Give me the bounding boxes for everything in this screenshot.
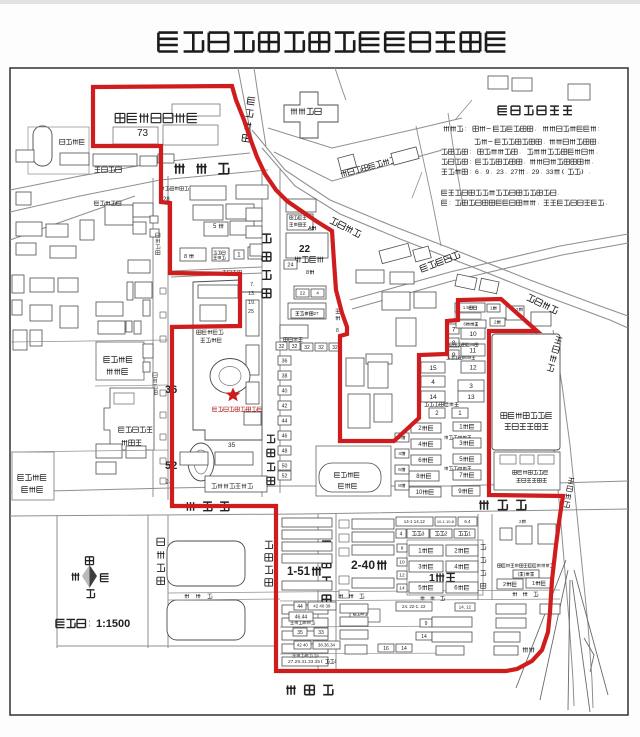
svg-text:48: 48 [282, 448, 288, 454]
svg-text:7.: 7. [250, 282, 255, 288]
svg-text:38.36.34: 38.36.34 [318, 643, 336, 648]
svg-text:6.4: 6.4 [464, 519, 471, 524]
svg-text:33: 33 [546, 169, 554, 176]
svg-text:40: 40 [282, 388, 288, 394]
svg-text:27.29.31.33.35: 27.29.31.33.35 [288, 659, 320, 665]
svg-text:35: 35 [297, 630, 303, 636]
svg-text:7: 7 [452, 326, 456, 333]
svg-text:2: 2 [519, 519, 522, 524]
svg-text:46: 46 [282, 433, 288, 439]
svg-text:29: 29 [532, 169, 540, 176]
svg-text:1:1500: 1:1500 [96, 618, 130, 630]
svg-text:73: 73 [137, 128, 149, 139]
svg-text:22: 22 [299, 244, 311, 255]
svg-text:35: 35 [228, 442, 236, 449]
svg-text:33: 33 [318, 630, 324, 636]
svg-text:1: 1 [468, 531, 471, 537]
svg-text:42: 42 [282, 403, 288, 409]
svg-text:1.5: 1.5 [463, 305, 469, 310]
svg-text:4: 4 [400, 531, 403, 537]
svg-text:4: 4 [431, 379, 435, 386]
svg-text:8: 8 [401, 546, 404, 552]
svg-text:32: 32 [279, 344, 285, 350]
svg-text:13: 13 [467, 394, 475, 401]
svg-text:19.: 19. [248, 300, 256, 306]
svg-text:8: 8 [398, 483, 401, 489]
svg-text:14: 14 [421, 634, 427, 640]
svg-text:10: 10 [399, 560, 405, 566]
svg-text:46.44: 46.44 [295, 614, 308, 620]
svg-text:42 40 38: 42 40 38 [313, 604, 331, 609]
svg-text:24. 22-1. 22: 24. 22-1. 22 [402, 604, 426, 609]
svg-text:6: 6 [475, 169, 479, 176]
svg-text:50: 50 [282, 463, 288, 469]
svg-text:13.: 13. [248, 291, 256, 297]
svg-text:14-1 14,12: 14-1 14,12 [404, 519, 426, 524]
svg-text:2: 2 [503, 582, 506, 588]
svg-text:11: 11 [469, 347, 476, 354]
svg-text:8: 8 [336, 328, 339, 334]
svg-text:10-1.10.8: 10-1.10.8 [437, 519, 455, 524]
svg-text:22: 22 [300, 291, 306, 297]
svg-text:27: 27 [314, 311, 320, 316]
svg-text:23: 23 [496, 169, 504, 176]
svg-text:12: 12 [399, 573, 405, 579]
svg-text:25: 25 [248, 309, 254, 315]
svg-text:A: A [308, 226, 312, 232]
svg-text:16: 16 [383, 646, 389, 652]
svg-text:44: 44 [297, 604, 303, 610]
svg-text:8: 8 [184, 254, 187, 260]
svg-text:36: 36 [282, 358, 288, 364]
svg-text:38: 38 [282, 373, 288, 379]
svg-text:8: 8 [306, 270, 309, 276]
svg-text:15: 15 [429, 365, 437, 372]
svg-text:3: 3 [422, 531, 425, 537]
svg-text:6: 6 [398, 467, 401, 473]
svg-text:32: 32 [318, 345, 324, 351]
svg-text:14, 12: 14, 12 [459, 605, 472, 610]
svg-text:32: 32 [332, 345, 338, 351]
svg-text:24: 24 [287, 263, 293, 269]
svg-text:42 40: 42 40 [297, 643, 309, 648]
svg-text:32: 32 [304, 345, 310, 351]
svg-text:2: 2 [445, 531, 448, 537]
svg-text:2-40: 2-40 [351, 558, 375, 572]
svg-text:32: 32 [292, 344, 298, 350]
svg-text:9: 9 [486, 169, 490, 176]
svg-text:52: 52 [282, 473, 288, 479]
svg-text:4: 4 [316, 291, 319, 297]
svg-text:14: 14 [429, 394, 437, 401]
svg-text:10: 10 [416, 490, 423, 496]
svg-text:14: 14 [399, 586, 405, 592]
svg-text:12: 12 [469, 364, 477, 371]
svg-text:1: 1 [532, 581, 535, 587]
svg-text:4: 4 [398, 451, 401, 457]
svg-text:27: 27 [511, 169, 519, 176]
svg-text:14: 14 [401, 646, 407, 652]
svg-text:44: 44 [282, 418, 288, 424]
svg-text:3: 3 [469, 383, 473, 390]
svg-text:10: 10 [469, 331, 477, 338]
svg-text:9: 9 [425, 621, 428, 627]
svg-text:1-51: 1-51 [287, 566, 311, 578]
